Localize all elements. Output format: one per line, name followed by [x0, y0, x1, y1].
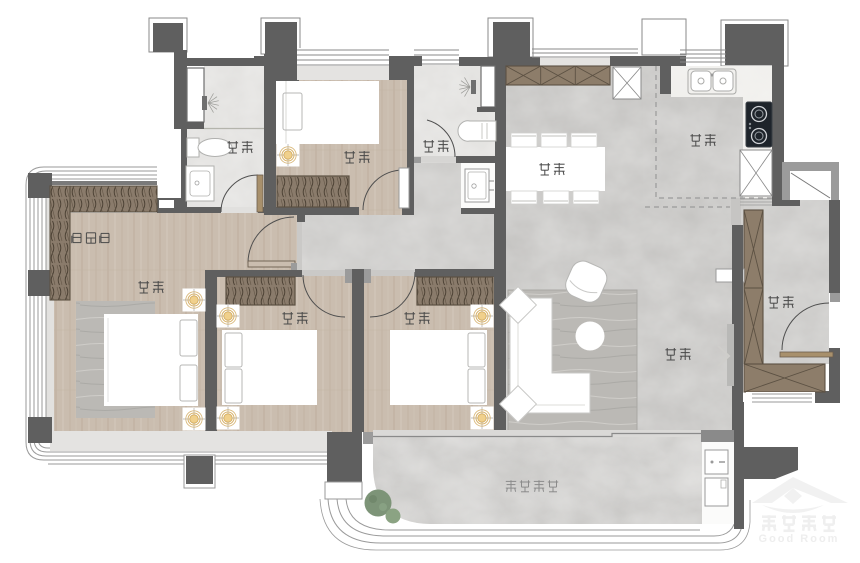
svg-text:Good Room: Good Room: [759, 533, 840, 545]
